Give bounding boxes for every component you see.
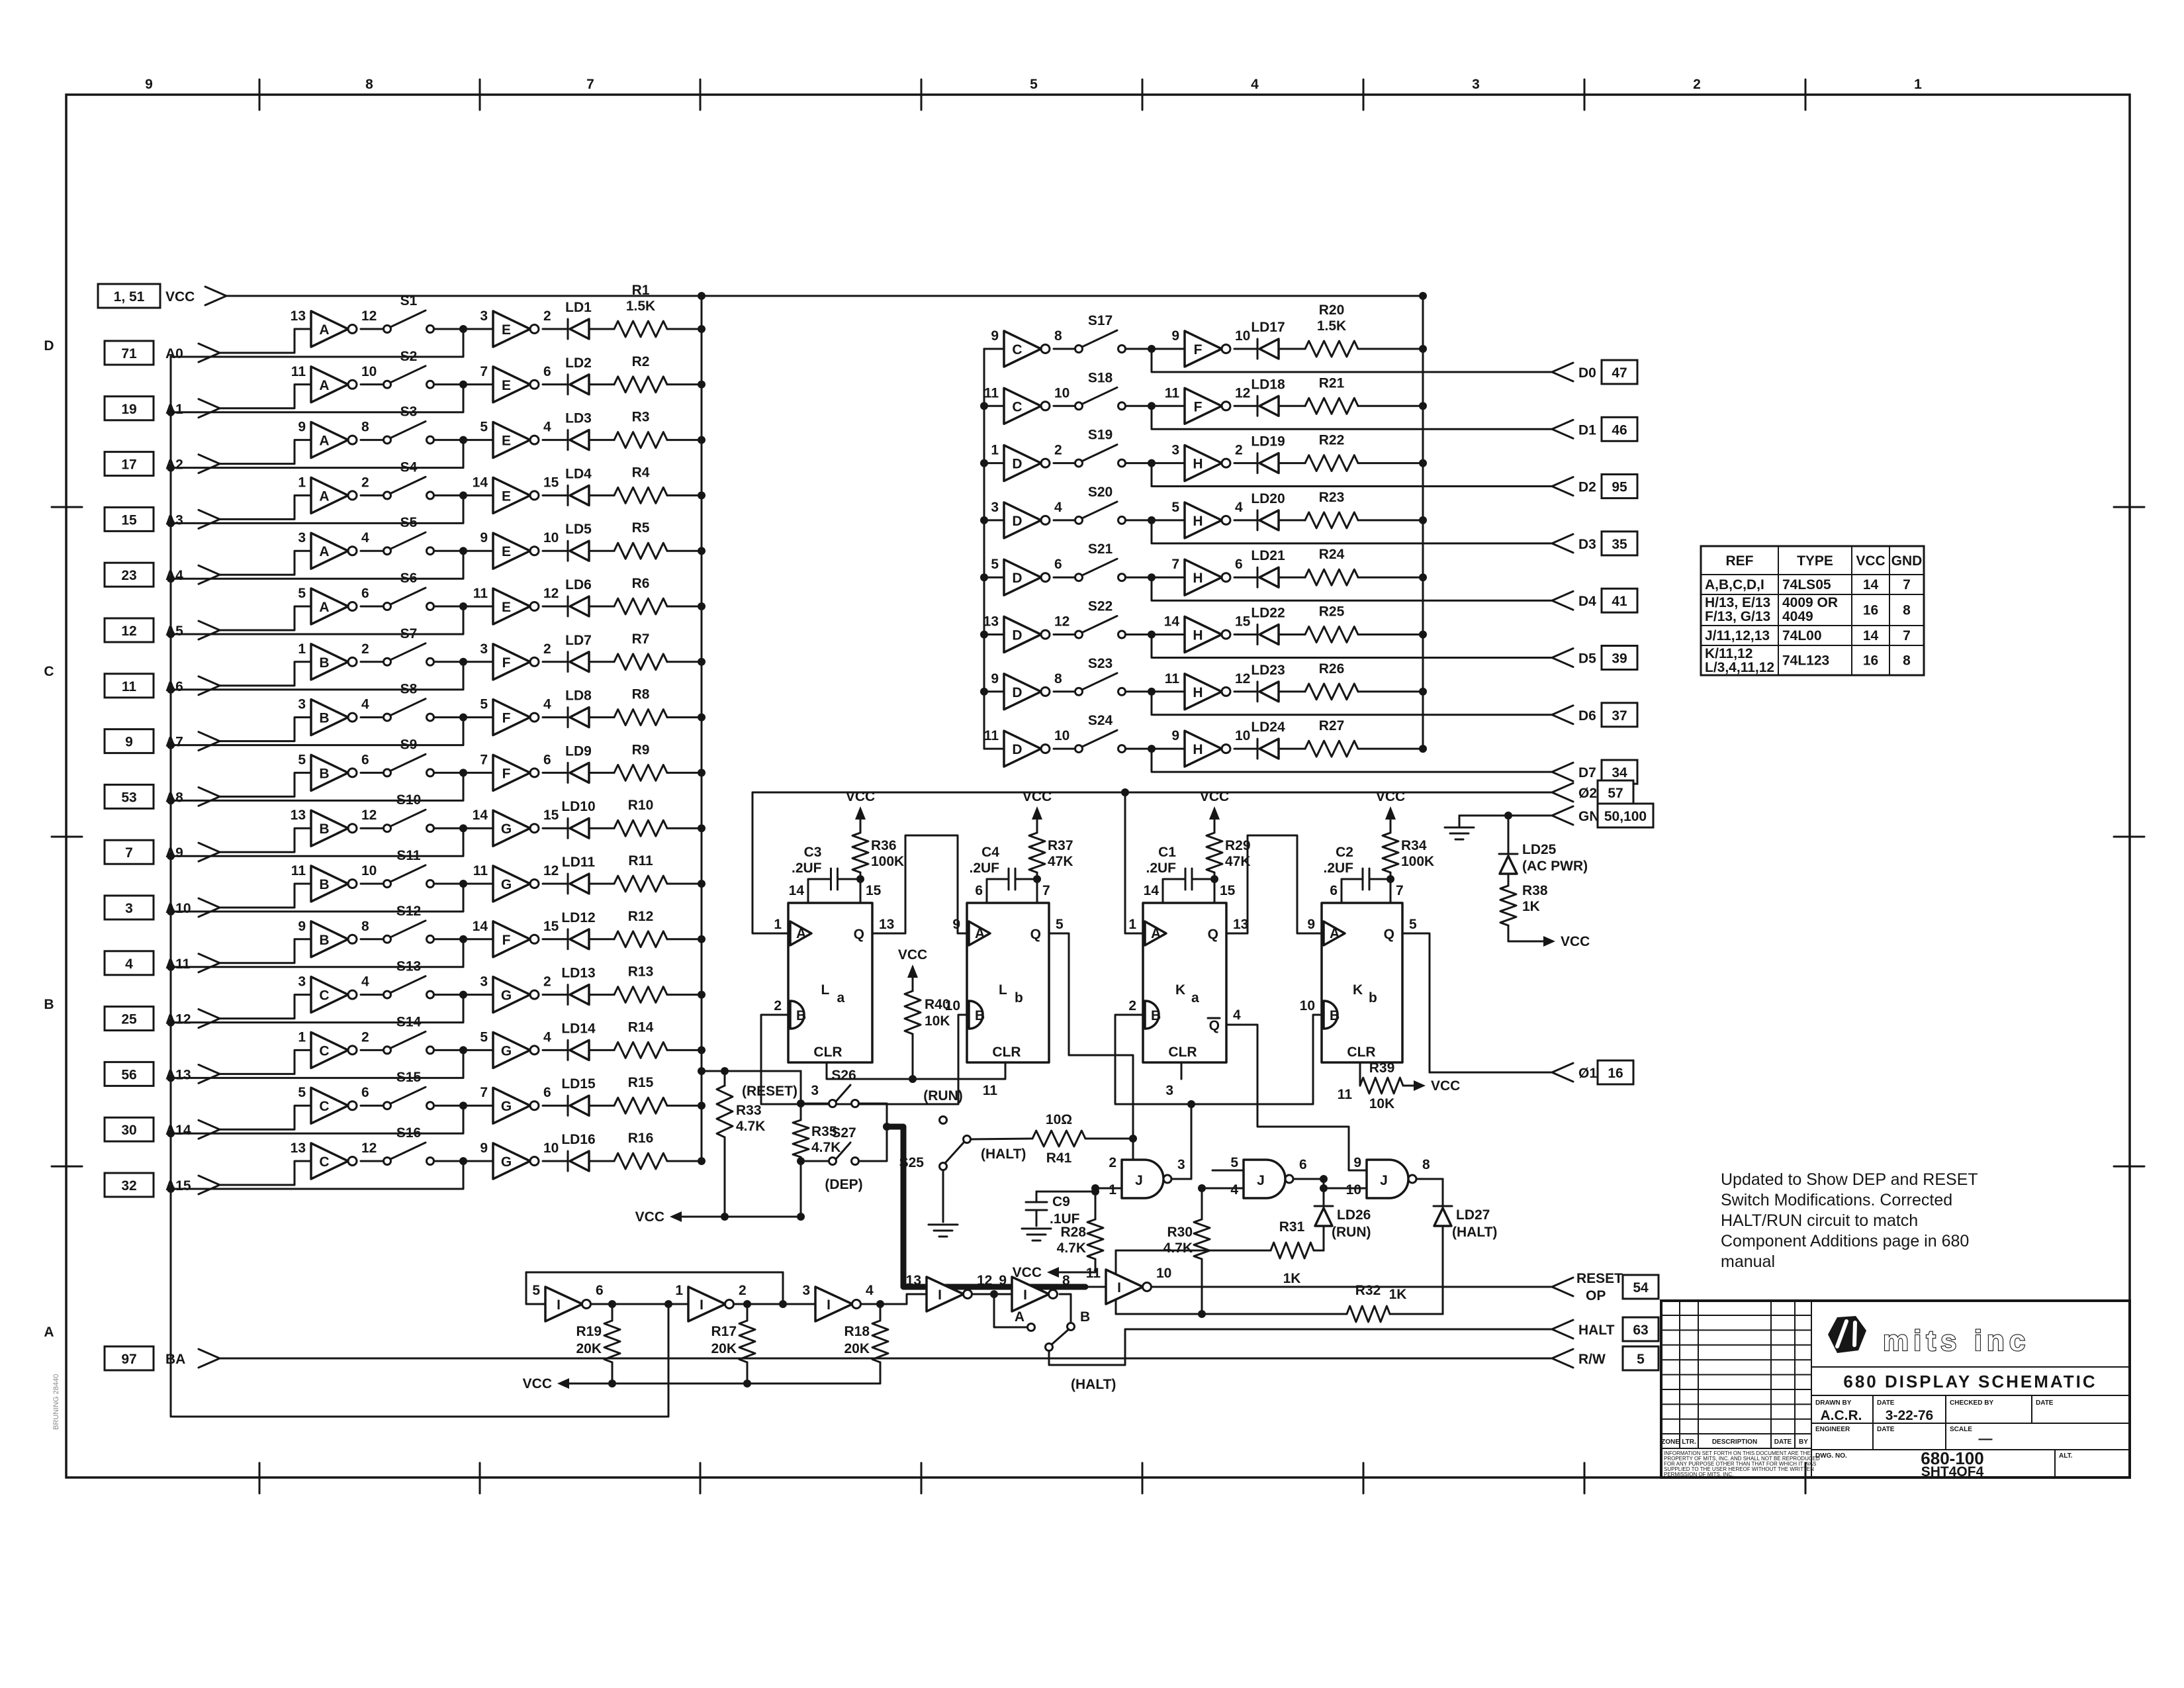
table-cell: A,B,C,D,I — [1705, 577, 1764, 592]
pin-number: 4 — [361, 974, 369, 990]
pin-number: 4 — [543, 1029, 551, 1045]
inverter-gate — [311, 977, 348, 1013]
inverter-gate — [311, 810, 348, 846]
data-row-S22: D1312H1415LD22R25 — [980, 604, 1552, 658]
vcc-label: VCC — [846, 789, 875, 804]
vcc-arrow-icon — [1385, 806, 1396, 820]
junction-dot — [698, 325, 705, 333]
inverter-gate — [493, 367, 530, 402]
pin-number: 25 — [121, 1012, 137, 1027]
pin-number: 10 — [361, 863, 377, 878]
table-cell: 7 — [1903, 577, 1911, 592]
switch-contact — [427, 492, 434, 499]
switch-S23[interactable]: S23 — [1075, 656, 1126, 696]
inverter-bubble — [1222, 573, 1230, 582]
contact-label: A — [1015, 1309, 1024, 1325]
signal-label: A14 — [165, 1123, 191, 1138]
switch-S7[interactable]: S7 — [384, 626, 434, 666]
pin-number: 6 — [361, 752, 369, 767]
pin-number: 6 — [1235, 557, 1243, 572]
gate-letter: A — [319, 489, 329, 504]
schematic-page: 98754321DCBABRUNING 284401, 51VCCA1312E3… — [0, 0, 2184, 1688]
junction-dot — [698, 1102, 705, 1109]
field-label: SCALE — [1950, 1426, 1972, 1433]
inverter-gate — [493, 755, 530, 790]
gate-letter: I — [1023, 1288, 1027, 1303]
led-LD3 — [570, 430, 589, 450]
sheet-number: SHT4OF4 — [1921, 1464, 1984, 1479]
signal-label: A7 — [165, 735, 183, 750]
table-header: REF — [1726, 553, 1754, 569]
switch-S22[interactable]: S22 — [1075, 599, 1126, 639]
junction-dot — [698, 1157, 705, 1165]
signal-label: A1 — [165, 402, 183, 417]
inverter-bubble — [348, 1046, 357, 1055]
inverter-bubble — [1041, 402, 1050, 410]
signal-label: D2 — [1578, 480, 1596, 495]
pin-number: 10 — [1054, 728, 1069, 743]
wire — [1508, 925, 1543, 941]
pin-number: 12 — [1054, 614, 1069, 630]
pin-number: 5 — [480, 697, 488, 712]
switch-label: S12 — [396, 904, 421, 919]
inverter-bubble — [348, 380, 357, 389]
switch-label: S23 — [1088, 656, 1113, 671]
switch-S18[interactable]: S18 — [1075, 370, 1126, 410]
pin-number: 10 — [1300, 998, 1315, 1013]
pin-number: 4 — [866, 1283, 874, 1298]
inverter-gate — [1004, 674, 1041, 710]
pin-number: 2 — [1054, 443, 1062, 458]
switch-blade — [390, 588, 426, 604]
resistor-R26 — [1305, 684, 1358, 700]
gate-letter: G — [501, 1099, 512, 1114]
capacitor-value: .2UF — [969, 861, 999, 876]
wire — [858, 1103, 887, 1127]
table-cell: L/3,4,11,12 — [1705, 660, 1774, 675]
halt-select-switch[interactable]: AB(HALT) — [1015, 1309, 1116, 1392]
switch-contact — [427, 880, 434, 888]
inverter-bubble — [530, 380, 539, 389]
switch-blade — [390, 366, 426, 383]
switch-label: S2 — [400, 349, 418, 364]
junction-dot — [698, 436, 705, 444]
led-label: LD16 — [561, 1132, 595, 1147]
input-b-label: B — [1151, 1008, 1161, 1023]
inverter-bubble — [530, 491, 539, 500]
inverter-gate — [1004, 731, 1041, 767]
switch-label: S11 — [396, 848, 421, 863]
junction-dot — [1419, 573, 1427, 581]
inverter-bubble — [348, 769, 357, 777]
capacitor-label: C9 — [1052, 1194, 1070, 1209]
clr-label: CLR — [1347, 1045, 1375, 1060]
switch-contact — [852, 1158, 859, 1165]
resistor-R5 — [614, 543, 667, 559]
address-input-connector-A10: 3A10 — [105, 896, 220, 919]
gate-letter: C — [319, 988, 329, 1004]
switch-S13[interactable]: S13 — [384, 959, 434, 999]
switch-contact — [1118, 574, 1126, 581]
resistor-label: R3 — [632, 410, 650, 425]
led-label: LD21 — [1251, 548, 1285, 563]
resistor-label: R9 — [632, 742, 650, 757]
switch-S14[interactable]: S14 — [384, 1014, 434, 1054]
address-input-connector-A13: 56A13 — [105, 1062, 220, 1086]
inverter-bubble — [1143, 1283, 1152, 1291]
switch-S12[interactable]: S12 — [384, 904, 434, 943]
led-LD7 — [570, 652, 589, 672]
pin-number: 6 — [543, 364, 551, 379]
pin-number: 71 — [121, 346, 137, 361]
one-shot-name-sub: b — [1015, 990, 1023, 1006]
gate-letter: E — [502, 434, 511, 449]
gate-letter: D — [1012, 514, 1022, 529]
switch-S15[interactable]: S15 — [384, 1070, 434, 1109]
connector-arrow-out — [1552, 806, 1573, 825]
connector-arrow-in — [199, 399, 220, 418]
pin-number: 13 — [291, 808, 306, 823]
switch-contact — [427, 825, 434, 832]
pin-number: 9 — [1353, 1155, 1361, 1170]
wire — [220, 329, 311, 353]
input-a-label: A — [975, 926, 985, 941]
pin-number: 10 — [543, 1141, 559, 1156]
inverter-bubble — [852, 1300, 861, 1309]
led-label: LD27 — [1456, 1207, 1490, 1223]
resistor-label: R10 — [628, 798, 654, 813]
switch-S17[interactable]: S17 — [1075, 313, 1126, 353]
pin-number: 5 — [298, 586, 306, 601]
inverter-bubble — [348, 824, 357, 833]
led-label: LD10 — [561, 799, 595, 814]
output-q-label: Q — [1208, 927, 1218, 942]
inverter-bubble — [1222, 402, 1230, 410]
led-label: LD7 — [565, 633, 592, 648]
pin-number: 3 — [298, 974, 306, 990]
pin-number: 41 — [1612, 594, 1627, 609]
rw-connector: R/W5 — [1552, 1346, 1659, 1370]
switch-S20[interactable]: S20 — [1075, 485, 1126, 524]
connector-arrow-in — [199, 1349, 220, 1368]
pin-number: 13 — [1233, 917, 1248, 932]
switch-S19[interactable]: S19 — [1075, 428, 1126, 467]
wire — [220, 551, 311, 575]
inverter-gate — [493, 644, 530, 680]
inverter-gate — [493, 311, 530, 347]
output-q-label: Q — [1384, 927, 1394, 942]
brand-name: mits inc — [1883, 1325, 2030, 1357]
pin-number: 9 — [480, 1141, 488, 1156]
inverter-gate — [1004, 617, 1041, 653]
inverter-gate — [311, 1143, 348, 1179]
data-row-S21: D56H76LD21R24 — [980, 547, 1552, 600]
gate-letter: H — [1193, 685, 1203, 700]
led-function-label: (AC PWR) — [1522, 859, 1588, 874]
pin-number: 8 — [1054, 328, 1062, 344]
switch-label: S22 — [1088, 599, 1113, 614]
wire — [220, 718, 311, 741]
pin-number: 14 — [1144, 883, 1160, 898]
inverter-gate — [927, 1277, 964, 1311]
junction-dot — [721, 1213, 729, 1221]
pin-number: 9 — [991, 671, 999, 686]
pin-number: 12 — [1235, 671, 1250, 686]
wire — [220, 995, 311, 1019]
inverter-bubble — [1041, 687, 1050, 696]
switch-blade — [390, 865, 426, 882]
switch-S8[interactable]: S8 — [384, 682, 434, 722]
switch-contact — [1028, 1324, 1035, 1331]
pin-number: 11 — [1086, 1266, 1101, 1281]
resistor-label: R36 — [871, 838, 897, 853]
reset-op-connector: RESETOP54 — [1552, 1271, 1659, 1303]
grid-row-letter: A — [44, 1325, 54, 1340]
switch-S21[interactable]: S21 — [1075, 541, 1126, 581]
switch-S24[interactable]: S24 — [1075, 713, 1126, 753]
address-input-connector-A1: 19A1 — [105, 397, 220, 420]
pin-number: 5 — [480, 1029, 488, 1045]
resistor-label: R24 — [1319, 547, 1345, 562]
pin-number: 9 — [480, 530, 488, 545]
junction-dot — [1419, 345, 1427, 353]
wire — [220, 385, 311, 408]
pin-number: 15 — [543, 919, 559, 934]
switch-S10[interactable]: S10 — [384, 792, 434, 832]
pin-number: 7 — [480, 752, 488, 767]
logo-cut — [1854, 1323, 1855, 1345]
pin-number: 13 — [983, 614, 999, 630]
resistor-R11 — [614, 876, 667, 892]
switch-function-label: (DEP) — [825, 1177, 862, 1192]
switch-blade — [390, 1143, 426, 1159]
led-LD9 — [570, 763, 589, 782]
address-row-S2: A1110E76LD2R2 — [167, 354, 705, 416]
pin-number: 2 — [1109, 1155, 1116, 1170]
resistor-label: R6 — [632, 576, 650, 591]
switch-S4[interactable]: S4 — [384, 459, 434, 499]
one-shot-Lb: A9Q5B10LbCLR67VCCC4.2UFR3747K — [945, 789, 1073, 1062]
led-LD22 — [1259, 625, 1279, 645]
data-output-connector-D2: D295 — [1552, 475, 1637, 498]
wire — [1402, 933, 1430, 1072]
wire — [987, 879, 1009, 903]
led-LD17 — [1259, 339, 1279, 359]
junction-dot — [1419, 631, 1427, 639]
junction-dot — [608, 1380, 616, 1387]
pin-number: 4 — [1235, 500, 1243, 515]
led-function-label: (HALT) — [1452, 1225, 1497, 1240]
pin-number: 12 — [543, 586, 559, 601]
switch-label: S9 — [400, 737, 418, 752]
switch-contact — [427, 603, 434, 610]
pin-number: 9 — [298, 919, 306, 934]
grid-column-number: 7 — [586, 77, 594, 92]
pin-number: 39 — [1612, 651, 1627, 667]
led-label: LD11 — [562, 855, 596, 870]
pin-number: 10 — [1054, 385, 1069, 400]
connector-arrow-in — [199, 843, 220, 861]
pin-number: 6 — [1330, 883, 1338, 898]
inverter-bubble — [348, 935, 357, 943]
led-triangle — [1434, 1208, 1451, 1226]
junction-dot — [698, 880, 705, 888]
switch-blade — [1082, 387, 1117, 404]
inverter-I-13-12: I1312 — [906, 1273, 993, 1311]
switch-label: S3 — [400, 404, 418, 420]
pin-number: 1 — [774, 917, 782, 932]
switch-S11[interactable]: S11 — [384, 848, 434, 888]
switch-blade — [1082, 673, 1117, 690]
wire — [808, 879, 831, 903]
switch-function-label: (RESET) — [742, 1084, 797, 1099]
switch-blade — [1082, 616, 1117, 633]
wire — [1049, 933, 1133, 1139]
switch-S2[interactable]: S2 — [384, 349, 434, 389]
drawing-title: 680 DISPLAY SCHEMATIC — [1843, 1372, 2097, 1391]
pin-number: 3 — [480, 974, 488, 990]
column-header: LTR. — [1682, 1438, 1696, 1446]
pin-number: 15 — [121, 512, 137, 528]
resistor-R16 — [614, 1153, 667, 1169]
inverter-bubble — [1222, 516, 1230, 524]
led-LD8 — [570, 708, 589, 727]
inverter-gate — [1185, 674, 1222, 710]
led-label: LD20 — [1251, 491, 1285, 506]
switch-contact — [1118, 346, 1126, 353]
switch-S3[interactable]: S3 — [384, 404, 434, 444]
inverter-gate — [1004, 502, 1041, 538]
switch-S5[interactable]: S5 — [384, 515, 434, 555]
pin-number: 15 — [866, 883, 882, 898]
inverter-bubble — [1222, 687, 1230, 696]
inverter-bubble — [1222, 630, 1230, 639]
field-label: DATE — [2036, 1399, 2054, 1407]
led-label: LD18 — [1251, 377, 1285, 392]
arrow-left-icon — [557, 1378, 569, 1389]
switch-S1[interactable]: S1 — [384, 293, 434, 333]
pin-number: 4 — [543, 697, 551, 712]
switch-S6[interactable]: S6 — [384, 571, 434, 610]
pin-number: 35 — [1612, 537, 1627, 552]
inverter-bubble — [530, 436, 539, 444]
connector-arrow-in — [199, 1009, 220, 1028]
one-shot-Ka: A1Q13B2KaCLR1415VCCC1.2UFR2947KQ4 — [1128, 789, 1250, 1062]
gate-letter: C — [319, 1043, 329, 1058]
inverter-I-3-4: I34 — [802, 1283, 874, 1321]
switch-function-label: (HALT) — [1071, 1377, 1116, 1392]
resistor-label: R18 — [844, 1324, 870, 1339]
switch-blade — [1082, 502, 1117, 518]
capacitor-label: C4 — [981, 845, 999, 860]
resistor-value: 10K — [925, 1013, 950, 1029]
vcc-label: VCC — [1023, 789, 1052, 804]
pin-number: 46 — [1612, 422, 1627, 438]
led-label: LD25 — [1522, 842, 1557, 857]
switch-blade — [390, 1087, 426, 1103]
gate-letter: E — [502, 322, 511, 338]
pin-number: 2 — [543, 974, 551, 990]
table-cell: J/11,12,13 — [1705, 628, 1770, 643]
switch-blade — [390, 754, 426, 771]
resistor-value: 100K — [1401, 854, 1434, 869]
table-cell: 16 — [1863, 653, 1878, 669]
gate-letter: D — [1012, 457, 1022, 472]
switch-contact — [1118, 516, 1126, 524]
pin-number: 56 — [121, 1067, 136, 1082]
signal-label: A10 — [165, 901, 191, 916]
address-row-S6: A56E1112LD6R6 — [167, 576, 705, 638]
connector-arrow-out — [1552, 534, 1573, 553]
gate-letter: G — [501, 1043, 512, 1058]
resistor-R8 — [614, 710, 667, 726]
switch-blade — [1082, 730, 1117, 747]
gate-letter: D — [1012, 742, 1022, 757]
pin-number: 5 — [298, 1085, 306, 1100]
signal-label: Ø2 — [1578, 786, 1597, 801]
inverter-gate — [1004, 388, 1041, 424]
switch-label: S4 — [400, 459, 418, 475]
inverter-bubble — [348, 547, 357, 555]
wire — [220, 606, 311, 630]
pin-number: 4 — [361, 697, 369, 712]
inverter-gate — [311, 1088, 348, 1123]
inverter-gate — [1004, 331, 1041, 367]
pin-number: 10 — [1156, 1266, 1171, 1281]
ba-input-connector: 97BA — [105, 1346, 220, 1370]
inverter-bubble — [530, 325, 539, 334]
switch-S25[interactable]: (RUN)S25(HALT) — [899, 1088, 1026, 1170]
pin-number: 9 — [298, 420, 306, 435]
led-LD18 — [1259, 396, 1279, 416]
resistor-label: R22 — [1319, 433, 1345, 448]
junction-dot — [698, 714, 705, 722]
address-input-connector-A9: 7A9 — [105, 840, 220, 864]
inverter-gate — [1185, 617, 1222, 653]
connector-arrow-out — [1552, 420, 1573, 438]
switch-S9[interactable]: S9 — [384, 737, 434, 776]
signal-label: D0 — [1578, 365, 1596, 381]
pin-number: 14 — [473, 808, 488, 823]
address-row-S7: B12F32LD7R7 — [167, 632, 705, 694]
mits-logo: mits inc — [1828, 1316, 2030, 1357]
pin-number: 3 — [811, 1083, 819, 1098]
gate-letter: G — [501, 877, 512, 892]
pin-number: 3 — [298, 530, 306, 545]
resistor-label: R31 — [1279, 1219, 1305, 1235]
switch-S16[interactable]: S16 — [384, 1125, 434, 1165]
resistor-R19 — [604, 1321, 620, 1362]
field-label: DRAWN BY — [1815, 1399, 1852, 1407]
pin-number: 6 — [1054, 557, 1062, 572]
pin-number: 11 — [984, 385, 999, 400]
switch-contact — [427, 547, 434, 555]
switch-blade — [390, 921, 426, 937]
address-row-S1: A1312E32LD1R11.5K — [171, 283, 705, 357]
input-a-label: A — [796, 926, 806, 941]
signal-label: A15 — [165, 1178, 191, 1194]
led-LD12 — [570, 929, 589, 949]
pin-number: 8 — [361, 420, 369, 435]
inverter-bubble — [1041, 745, 1050, 753]
gate-letter: F — [1194, 399, 1203, 414]
wire — [220, 939, 311, 963]
date-value: 3-22-76 — [1886, 1408, 1933, 1423]
led-label: LD9 — [565, 743, 592, 759]
switch-contact — [427, 381, 434, 388]
pin-number: 19 — [121, 402, 136, 417]
gate-letter: J — [1135, 1173, 1143, 1188]
